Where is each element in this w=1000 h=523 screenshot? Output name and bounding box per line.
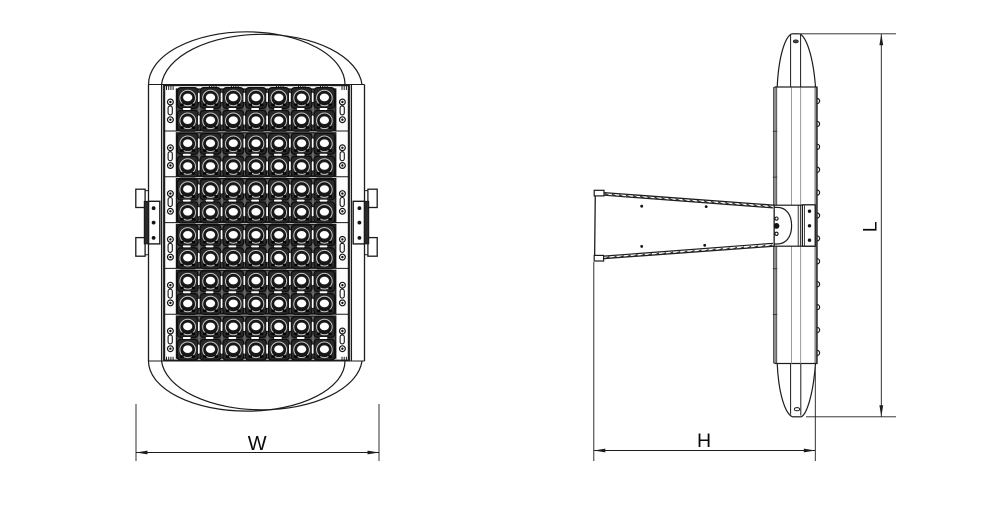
- svg-text:H: H: [697, 430, 711, 452]
- svg-text:W: W: [248, 433, 267, 455]
- svg-text:L: L: [860, 221, 882, 232]
